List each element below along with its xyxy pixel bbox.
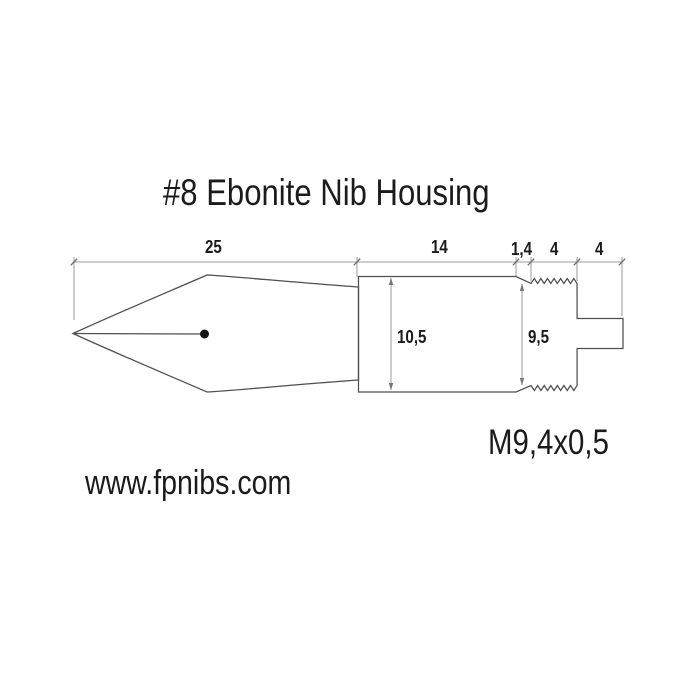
- diagram-page: #8 Ebonite Nib Housing 25 14 1,4 4 4 10,…: [0, 0, 700, 700]
- breather-hole: [200, 330, 209, 339]
- nib-slit-line: [73, 334, 204, 335]
- dim-label-chamfer-length: 1,4: [511, 240, 532, 258]
- arrow-down-icon: [520, 378, 524, 386]
- thread-spec-label: M9,4x0,5: [488, 425, 609, 460]
- dim-label-body-length: 14: [431, 238, 448, 256]
- dim-label-tip-length: 4: [595, 240, 603, 258]
- arrow-up-icon: [520, 284, 524, 292]
- website-text: www.fpnibs.com: [85, 466, 291, 500]
- nib-housing-drawing: [0, 0, 700, 700]
- arrow-down-icon: [389, 383, 393, 391]
- arrow-up-icon: [389, 278, 393, 286]
- dim-label-thread-length: 4: [550, 240, 558, 258]
- dim-label-nib-length: 25: [205, 238, 222, 256]
- label-body-diameter: 10,5: [397, 328, 426, 346]
- label-thread-diameter: 9,5: [528, 328, 549, 346]
- diagram-title: #8 Ebonite Nib Housing: [163, 174, 490, 211]
